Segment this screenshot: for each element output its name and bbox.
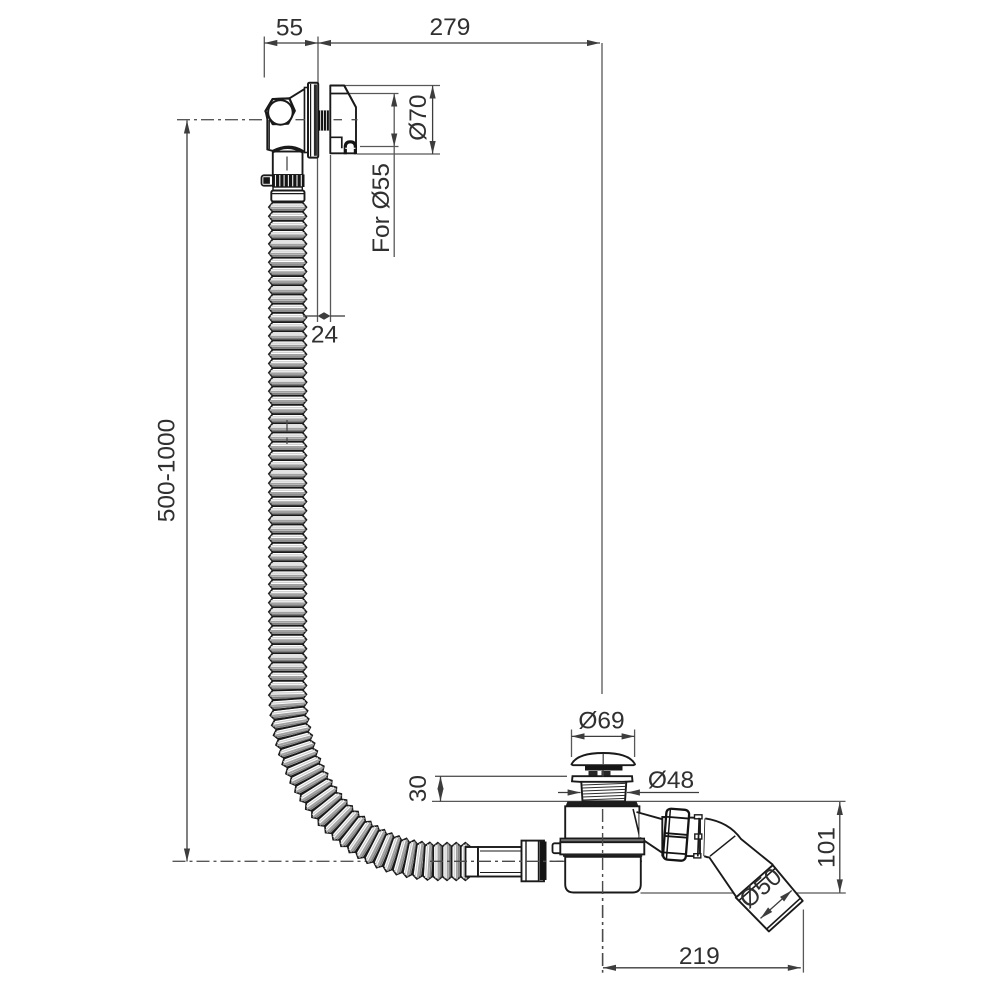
svg-text:24: 24 <box>311 322 338 349</box>
svg-text:30: 30 <box>405 775 432 802</box>
svg-text:Ø70: Ø70 <box>405 94 432 140</box>
svg-text:101: 101 <box>813 827 840 868</box>
svg-text:Ø48: Ø48 <box>648 767 694 794</box>
svg-text:Ø69: Ø69 <box>578 707 624 734</box>
svg-text:500-1000: 500-1000 <box>153 419 180 523</box>
svg-text:219: 219 <box>679 943 720 970</box>
svg-text:55: 55 <box>276 15 303 42</box>
svg-text:For Ø55: For Ø55 <box>368 163 395 253</box>
svg-text:279: 279 <box>430 14 471 41</box>
